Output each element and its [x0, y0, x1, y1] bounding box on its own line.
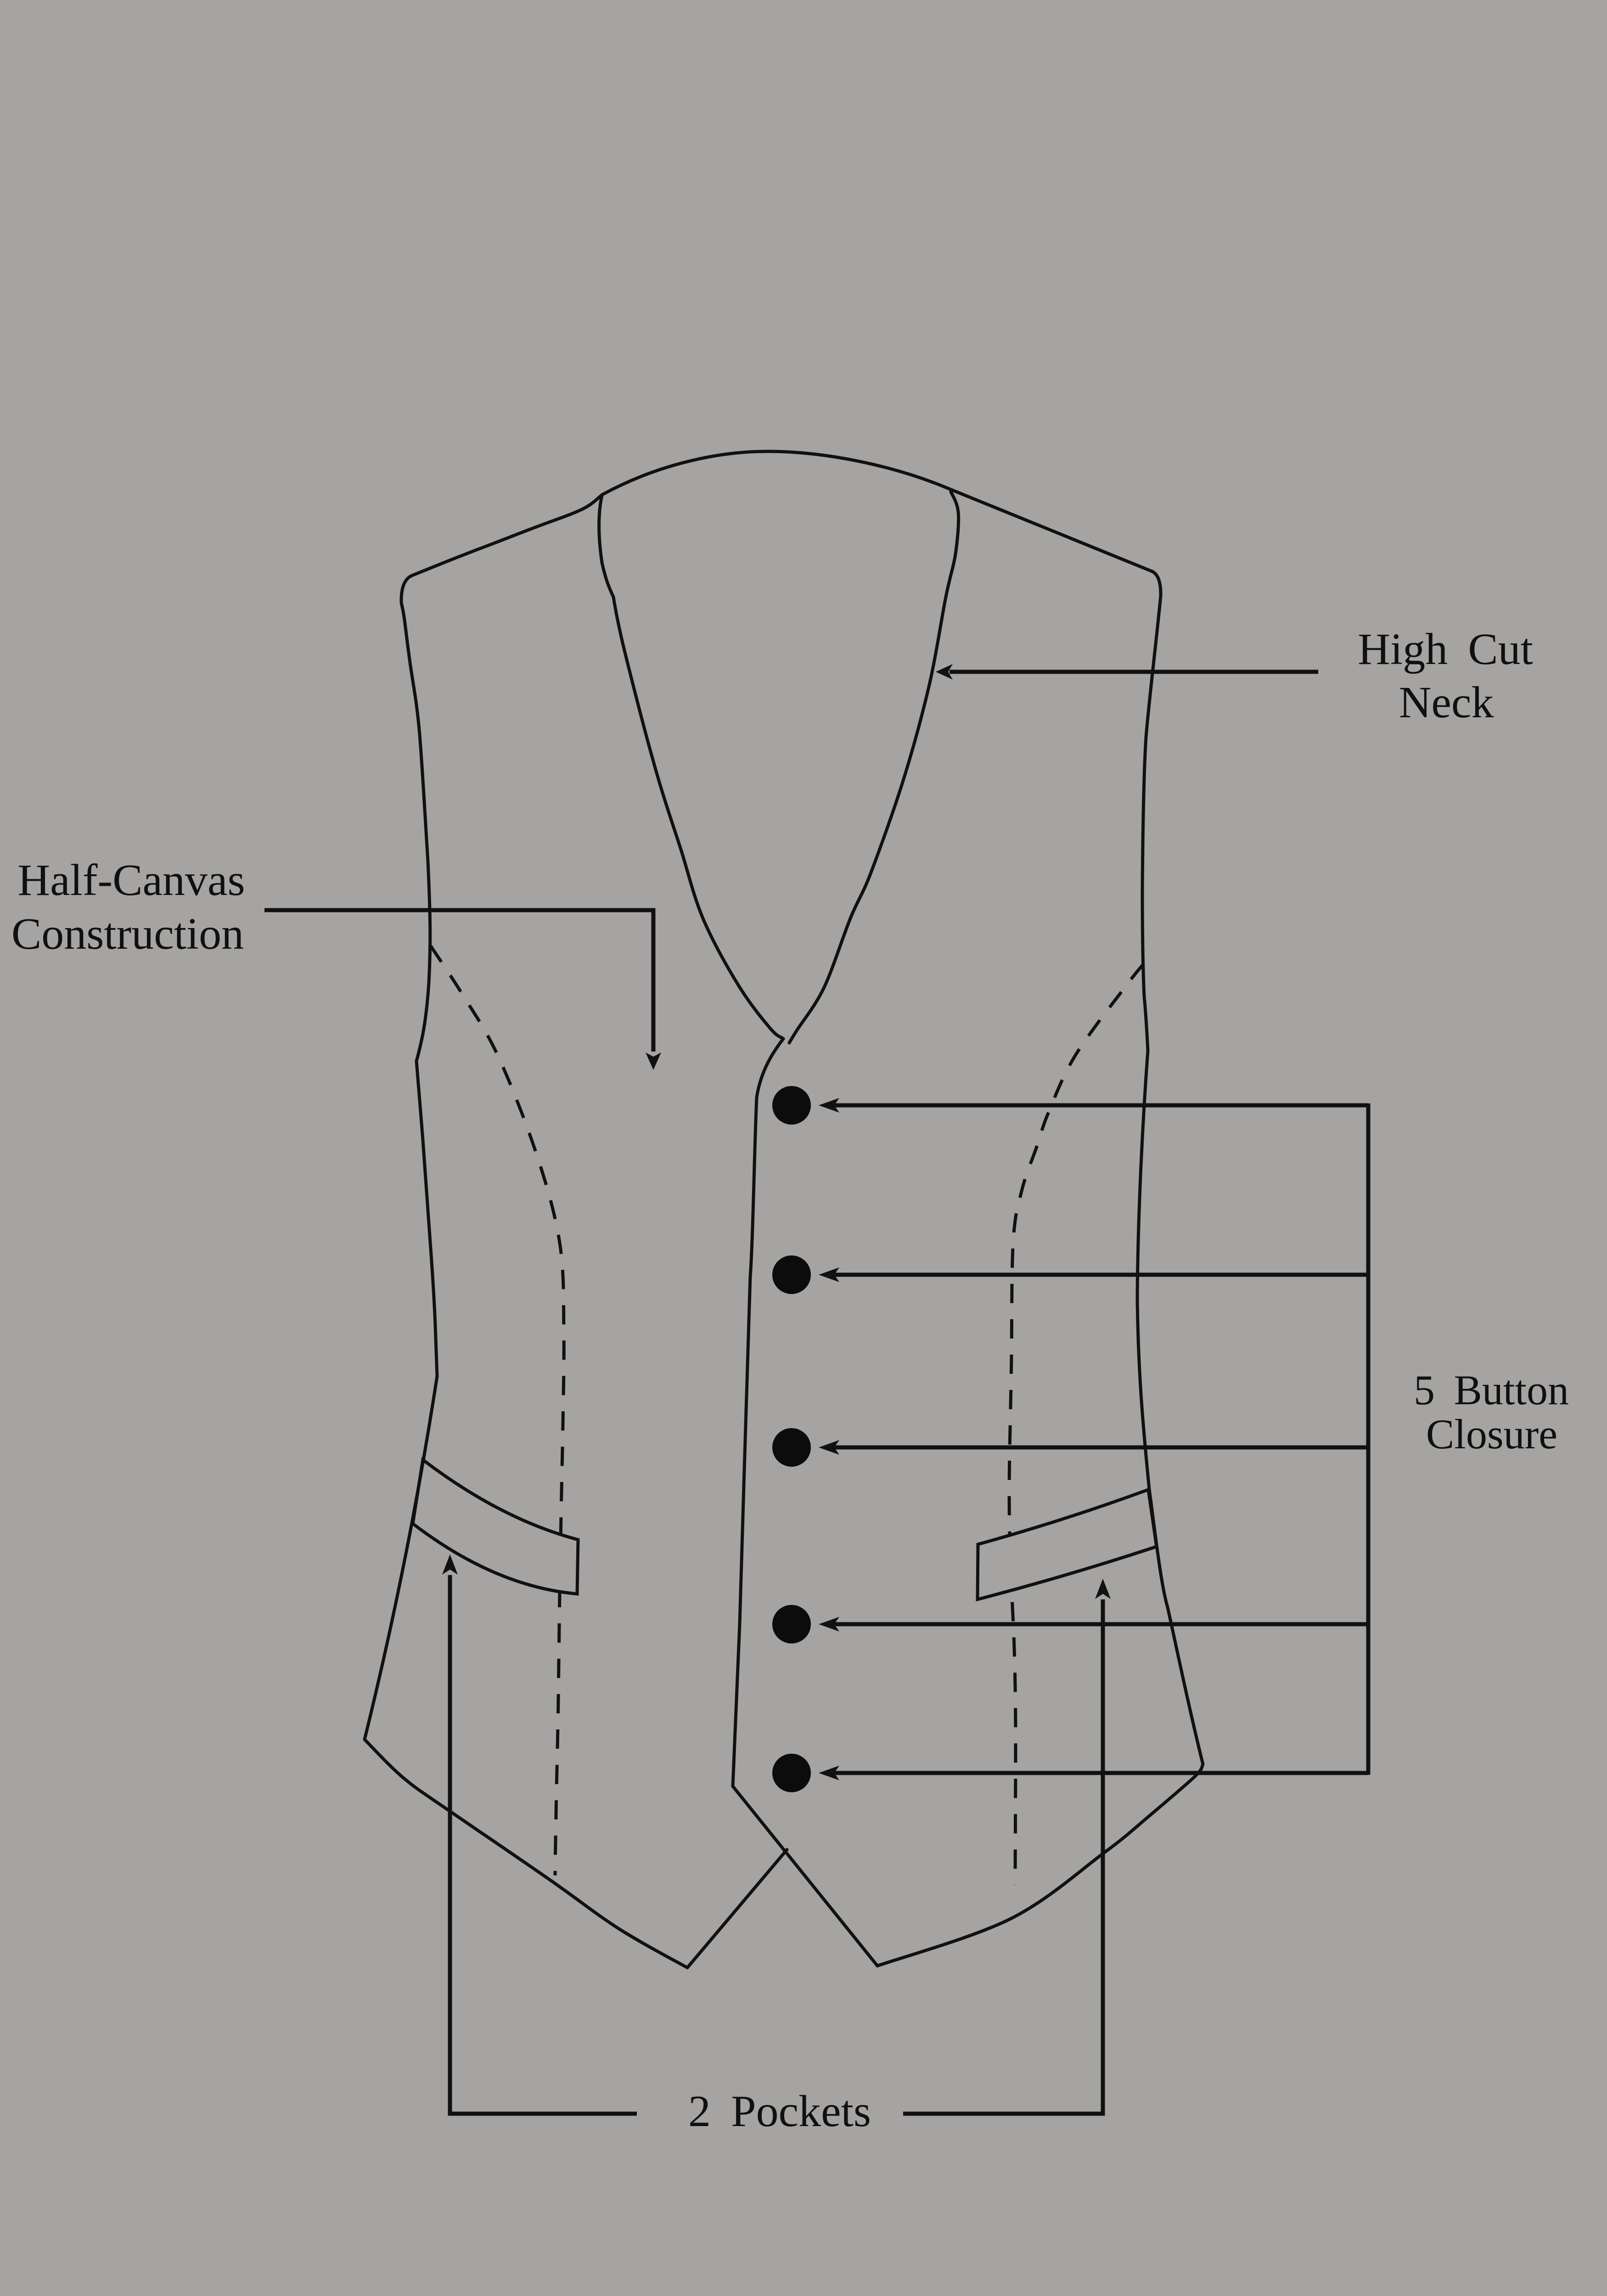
svg-text:5 Button: 5 Button [1414, 1367, 1569, 1413]
svg-text:Neck: Neck [1399, 678, 1494, 727]
svg-text:High Cut: High Cut [1358, 625, 1533, 674]
svg-text:2 Pockets: 2 Pockets [688, 2087, 871, 2136]
svg-text:Closure: Closure [1426, 1411, 1557, 1458]
svg-text:Construction: Construction [11, 909, 244, 959]
svg-text:Half-Canvas: Half-Canvas [17, 855, 245, 905]
